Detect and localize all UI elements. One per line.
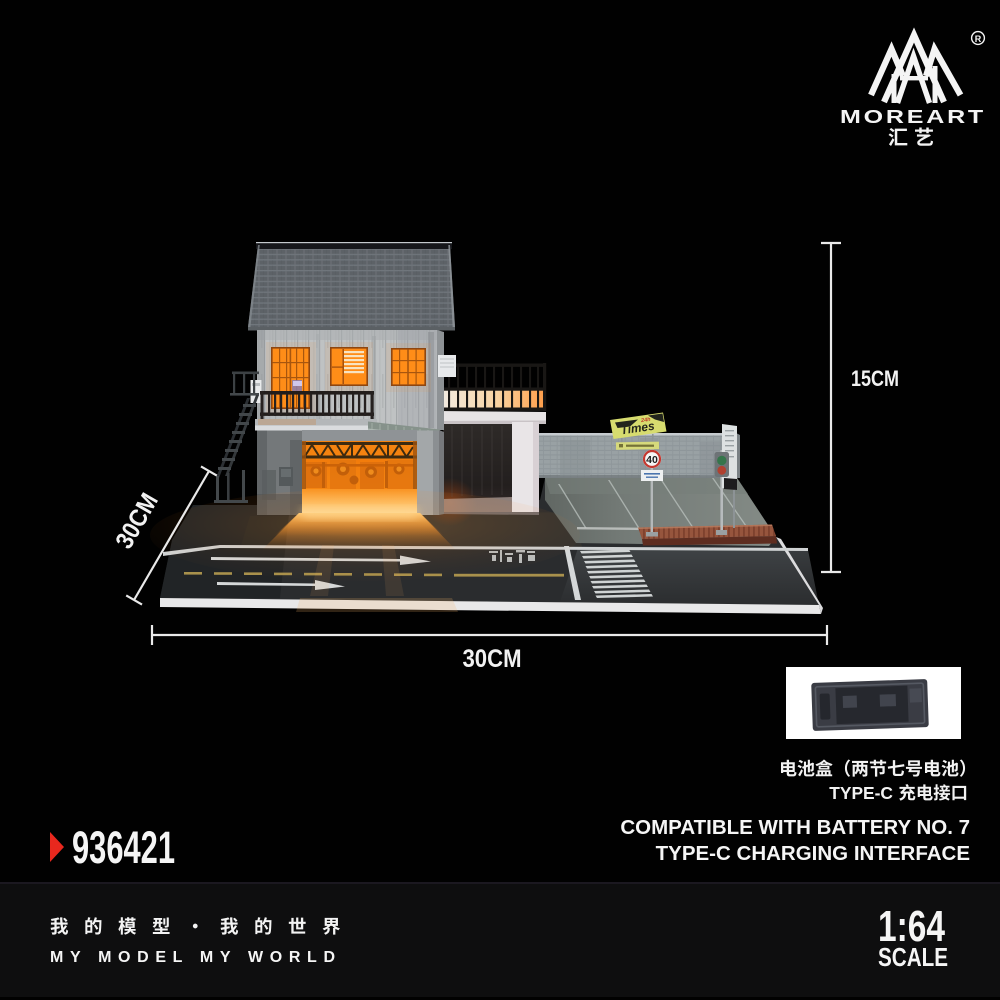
svg-text:TYPE-C: TYPE-C [829, 783, 893, 803]
svg-text:SCALE: SCALE [878, 942, 948, 972]
svg-text:30CM: 30CM [463, 645, 522, 673]
svg-text:MOREART: MOREART [840, 107, 986, 127]
svg-text:R: R [975, 34, 982, 44]
svg-text:TYPE-C CHARGING INTERFACE: TYPE-C CHARGING INTERFACE [656, 842, 970, 865]
svg-text:COMPATIBLE WITH BATTERY NO. 7: COMPATIBLE WITH BATTERY NO. 7 [620, 816, 970, 839]
svg-text:40: 40 [646, 454, 658, 466]
svg-text:936421: 936421 [72, 822, 175, 873]
svg-text:15CM: 15CM [851, 366, 899, 391]
